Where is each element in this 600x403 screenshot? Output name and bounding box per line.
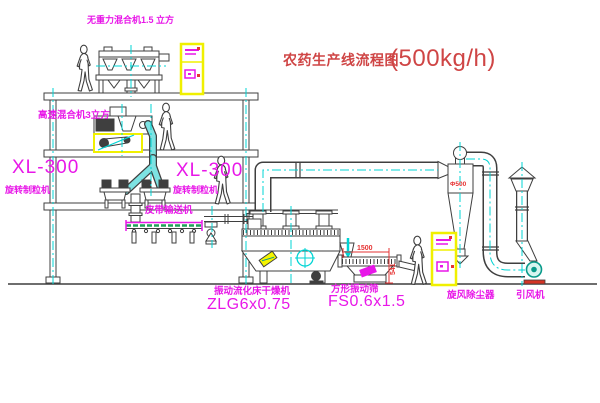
label-cyclone: 旋风除尘器 (447, 291, 495, 301)
dim-screen-length: 1500 (357, 245, 373, 252)
diagram-title-capacity: (500kg/h) (390, 47, 496, 71)
control-cabinet-right (432, 233, 456, 285)
person-second-floor (159, 103, 175, 150)
person-roof (77, 45, 92, 91)
vibrating-screen-drawing (338, 255, 416, 282)
label-high-speed-mixer: 高速混合机3立方 (38, 111, 110, 121)
label-dryer-model: ZLG6x0.75 (207, 297, 291, 313)
dim-screen-height: 541 (390, 263, 397, 275)
gravity-mixer-drawing (96, 47, 169, 93)
granulator-down-pipe (129, 194, 142, 222)
label-granulator-mid-model: XL-300 (176, 161, 243, 180)
diagram-title: 农药生产线流程图 (283, 53, 399, 67)
label-granulator-mid-name: 旋转制粒机 (173, 186, 218, 195)
label-granulator-left-name: 旋转制粒机 (5, 186, 50, 195)
label-screen-model: FS0.6x1.5 (328, 294, 405, 310)
control-cabinet-roof (181, 44, 203, 94)
belt-conveyor-drawing (126, 220, 202, 243)
dim-cyclone-diameter: Φ500 (450, 182, 466, 189)
label-fan: 引风机 (516, 291, 545, 301)
label-gravity-mixer: 无重力混合机1.5 立方 (87, 16, 174, 25)
fluid-bed-dryer-drawing (242, 210, 354, 284)
process-flow-diagram: 农药生产线流程图 (500kg/h) 无重力混合机1.5 立方 高速混合机3立方… (0, 0, 600, 403)
label-granulator-left-model: XL-300 (12, 158, 79, 177)
label-belt-conveyor: 皮带输送机 (145, 206, 193, 216)
person-yard (410, 236, 426, 284)
